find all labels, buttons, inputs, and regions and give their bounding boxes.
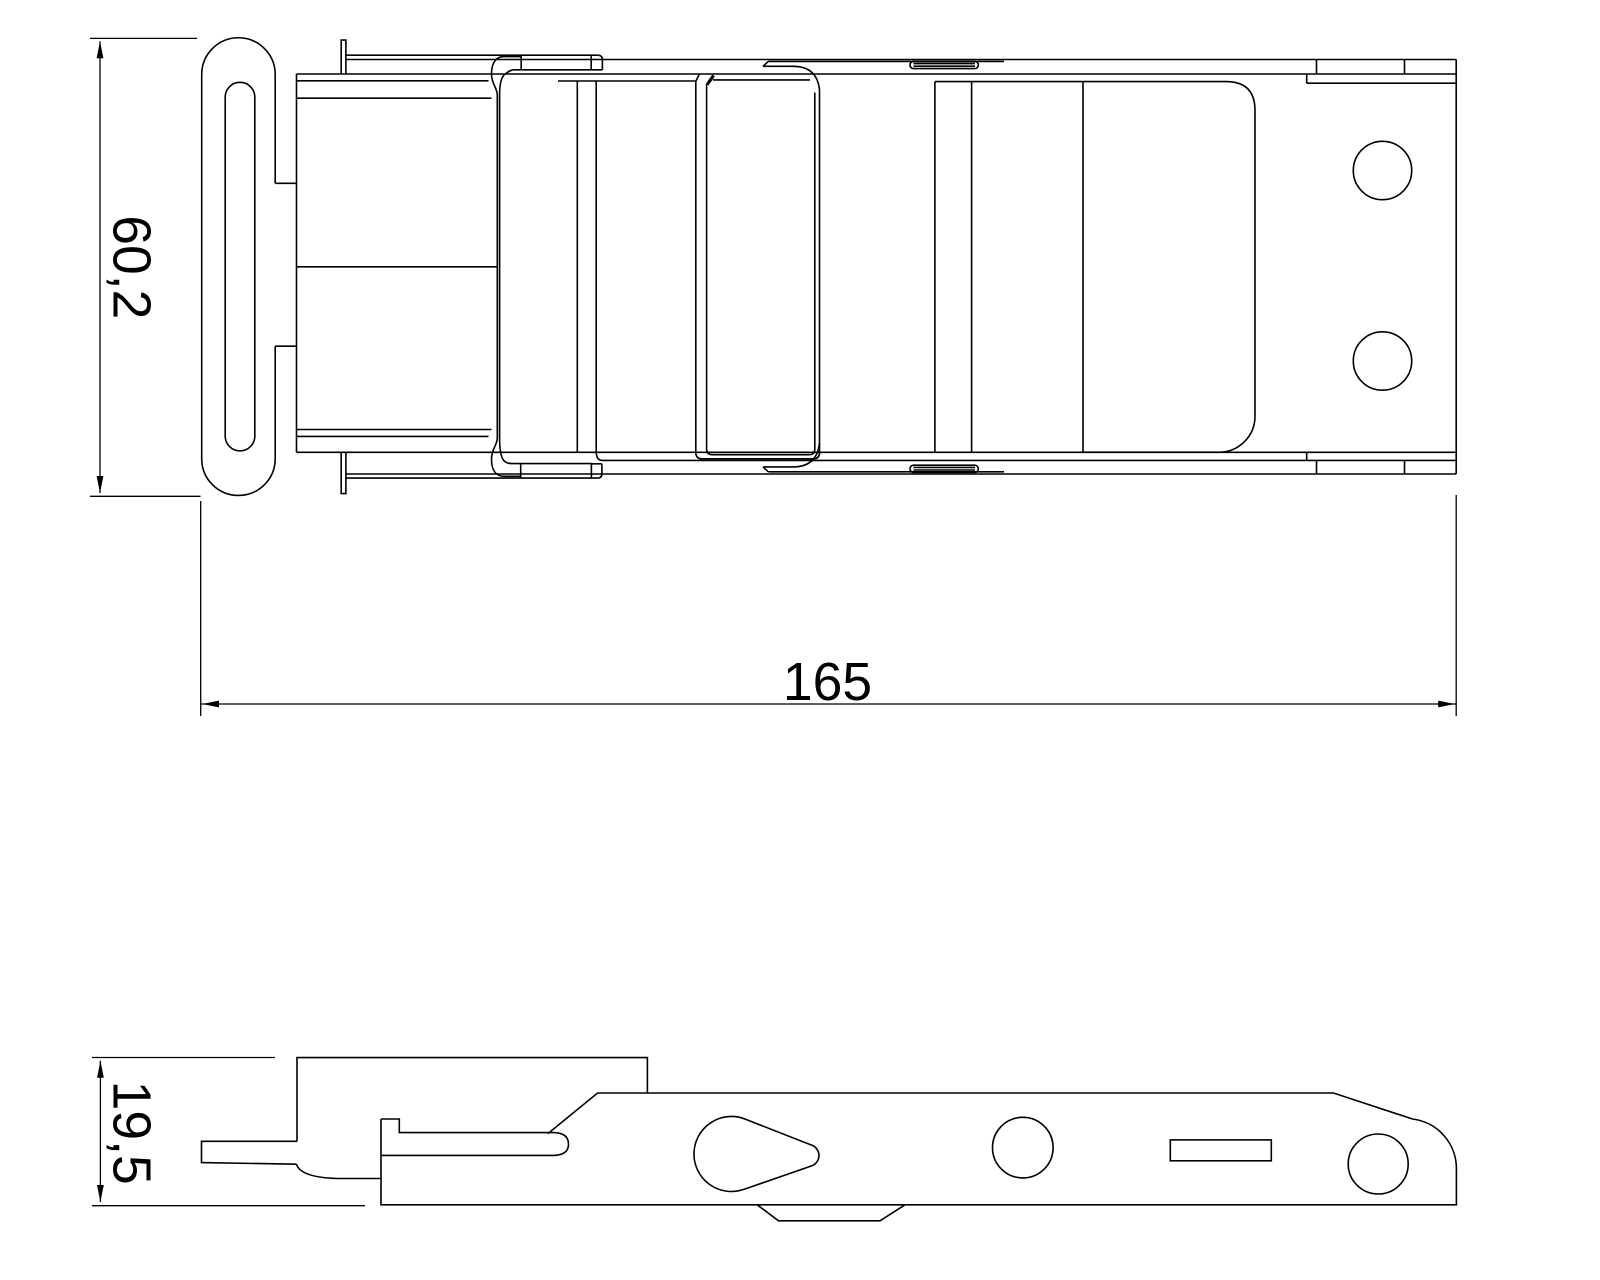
svg-text:60,2: 60,2 — [101, 215, 160, 319]
svg-text:19,5: 19,5 — [101, 1081, 160, 1185]
svg-text:165: 165 — [783, 653, 872, 712]
